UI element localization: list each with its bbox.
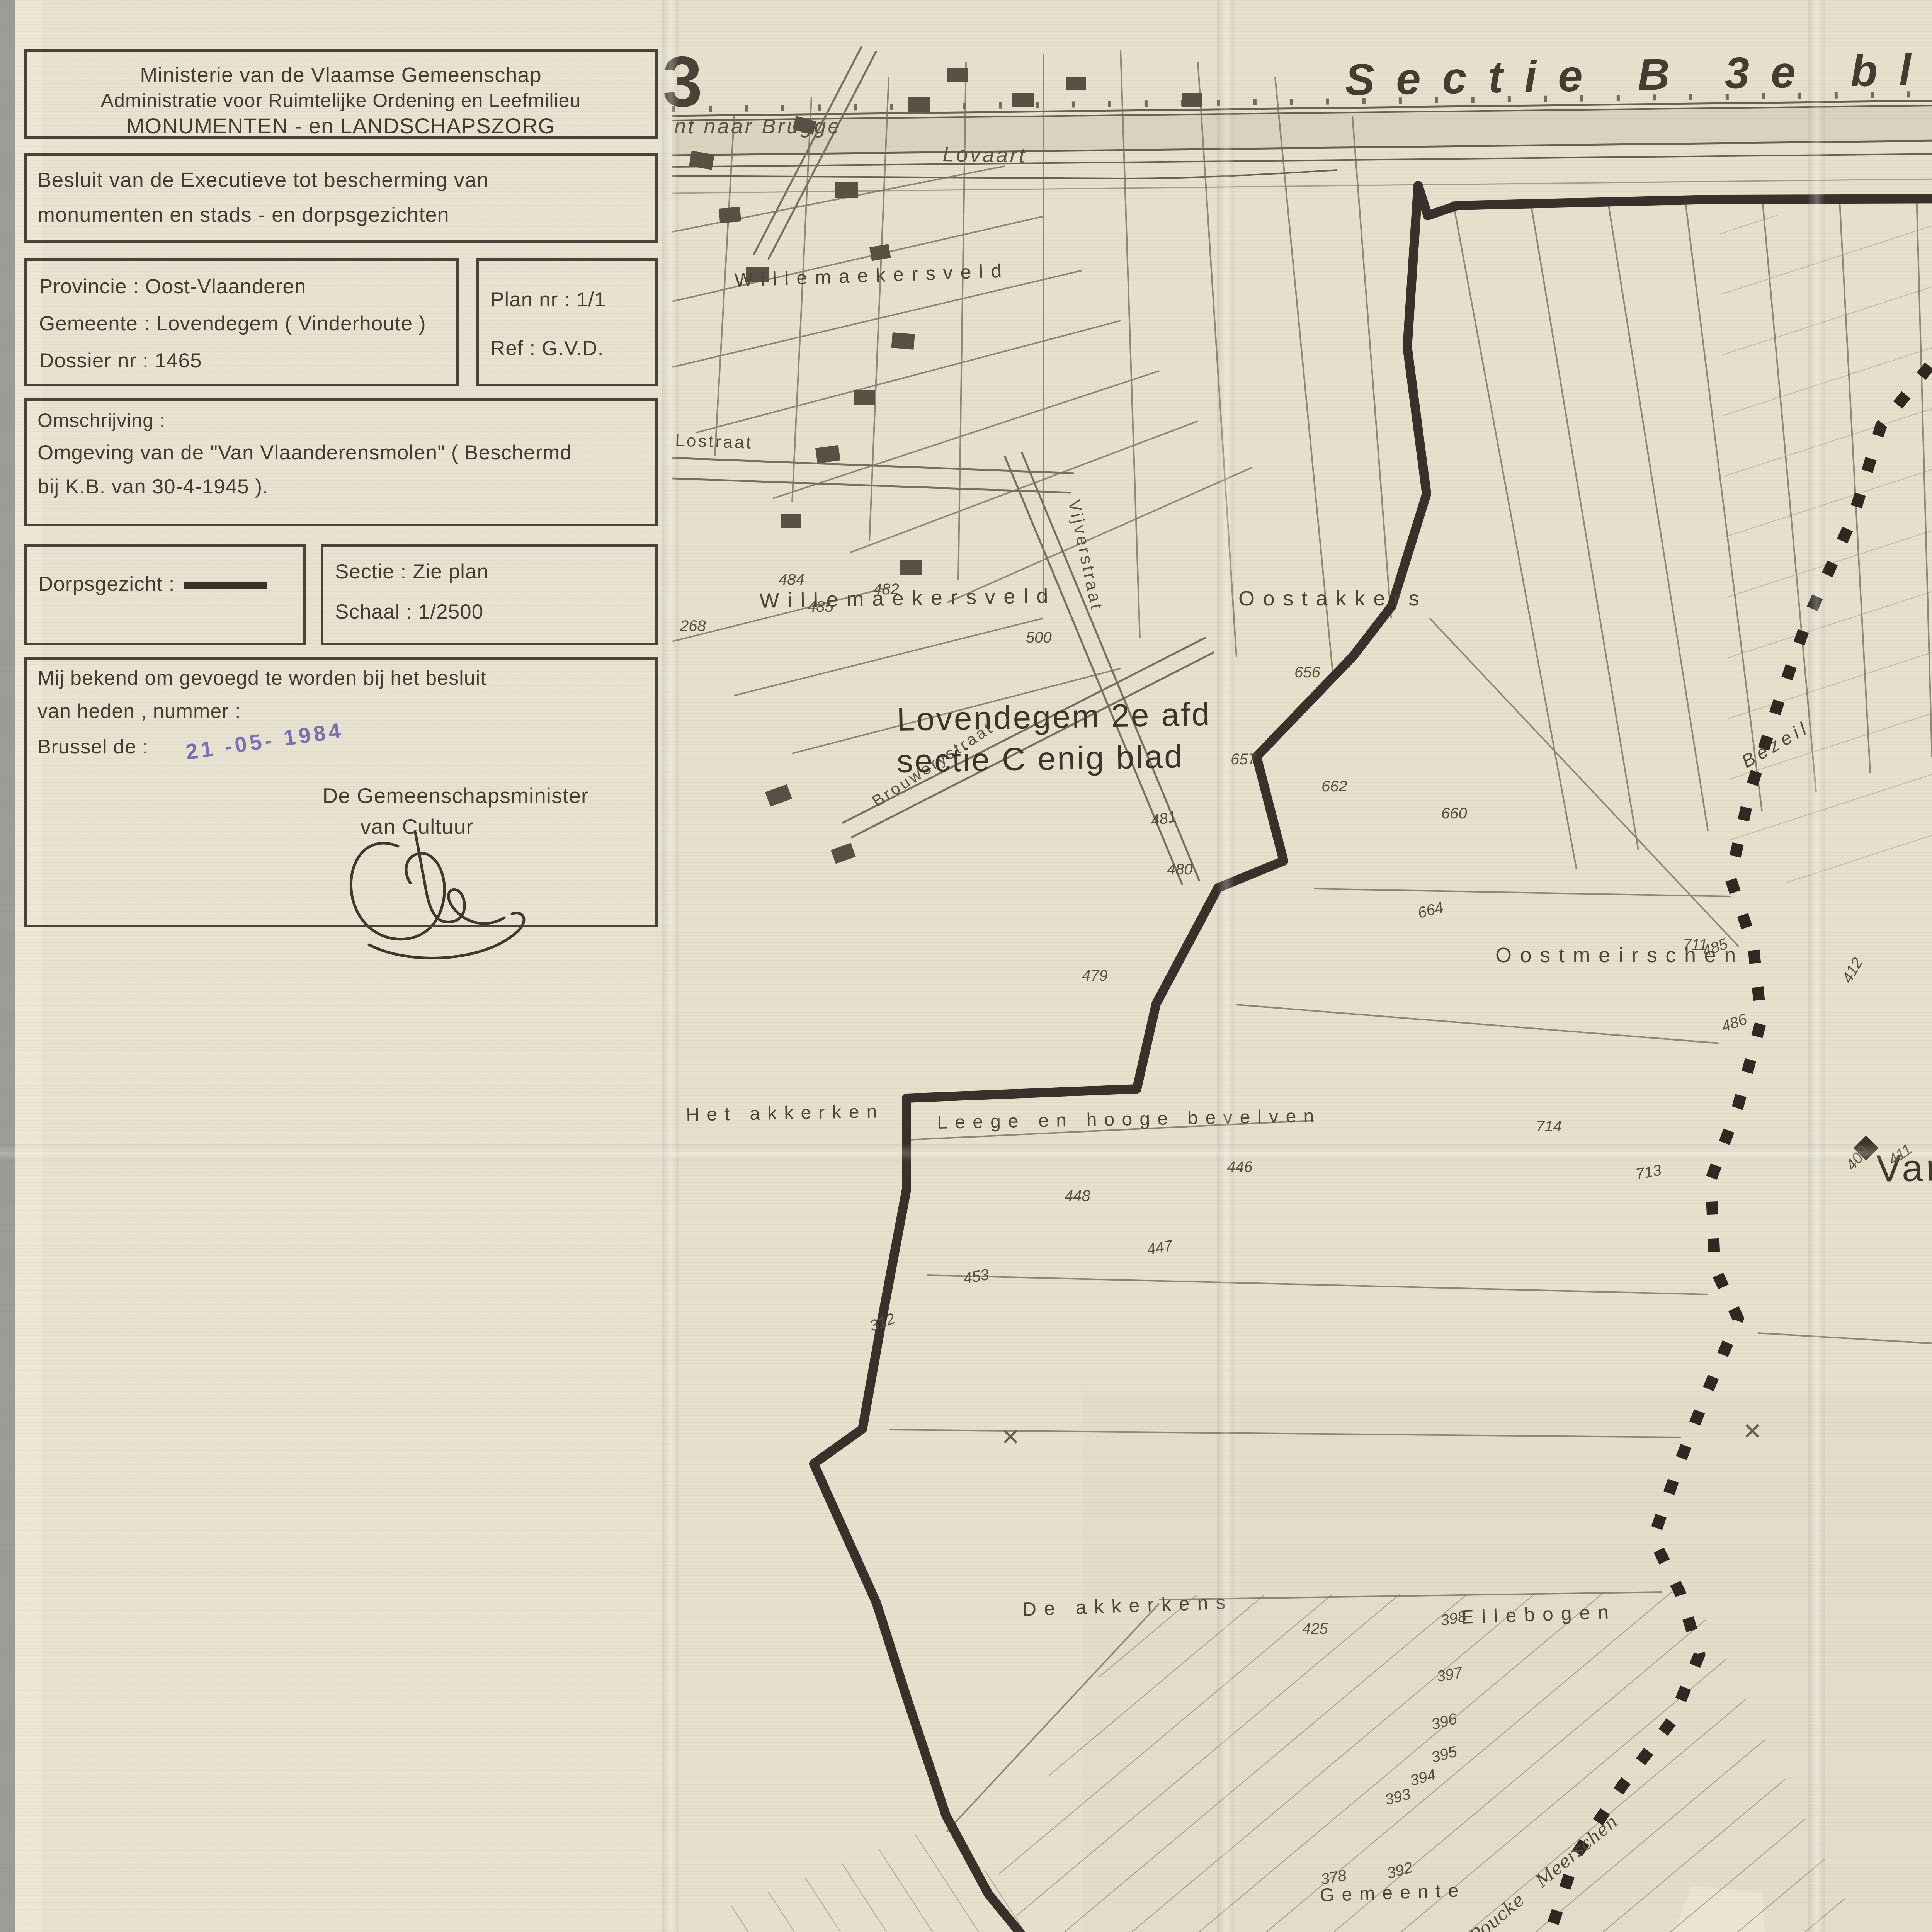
minister-line: De Gemeenschapsminister (282, 783, 629, 808)
dossier-label: Dossier nr : 1465 (39, 349, 202, 372)
sectie-label: Sectie : Zie plan (335, 560, 489, 583)
ref-label: Ref : G.V.D. (490, 337, 604, 360)
scanned-map-document: 3Sectie B 3e bladnt naar BruggeLovaart· … (0, 0, 1932, 1932)
description-box: Omschrijving : Omgeving van de "Van Vlaa… (24, 398, 658, 526)
note-line: Brussel de : (37, 735, 148, 759)
plan-number-label: Plan nr : 1/1 (490, 288, 606, 311)
note-line: Mij bekend om gevoegd te worden bij het … (37, 667, 486, 690)
approval-box: Mij bekend om gevoegd te worden bij het … (24, 657, 658, 927)
plan-ref-box: Plan nr : 1/1 Ref : G.V.D. (476, 258, 658, 386)
description-line: bij K.B. van 30-4-1945 ). (37, 475, 269, 498)
decree-line: Besluit van de Executieve tot beschermin… (37, 168, 489, 192)
dorpsgezicht-text: Dorpsgezicht : (38, 573, 175, 595)
province-label: Provincie : Oost-Vlaanderen (39, 275, 306, 298)
decree-box: Besluit van de Executieve tot beschermin… (24, 153, 658, 243)
ministry-line: MONUMENTEN - en LANDSCHAPSZORG (27, 113, 655, 138)
ministry-line: Administratie voor Ruimtelijke Ordening … (27, 89, 655, 112)
date-stamp: 21 -05- 1984 (184, 718, 345, 765)
note-line: van heden , nummer : (37, 700, 241, 723)
municipality-label: Gemeente : Lovendegem ( Vinderhoute ) (39, 312, 426, 335)
description-title: Omschrijving : (37, 409, 165, 432)
dorpsgezicht-line-swatch (184, 582, 267, 589)
dorpsgezicht-legend-box: Dorpsgezicht : (24, 544, 306, 645)
ministry-box: Ministerie van de Vlaamse Gemeenschap Ad… (24, 49, 658, 139)
info-panel: Ministerie van de Vlaamse Gemeenschap Ad… (0, 0, 1932, 1932)
dorpsgezicht-label: Dorpsgezicht : (38, 572, 267, 596)
location-box: Provincie : Oost-Vlaanderen Gemeente : L… (24, 258, 459, 386)
minister-line: van Cultuur (243, 814, 591, 839)
schaal-label: Schaal : 1/2500 (335, 600, 483, 624)
sectie-schaal-box: Sectie : Zie plan Schaal : 1/2500 (321, 544, 658, 645)
description-line: Omgeving van de "Van Vlaanderensmolen" (… (37, 441, 572, 464)
decree-line: monumenten en stads - en dorpsgezichten (37, 203, 449, 227)
ministry-line: Ministerie van de Vlaamse Gemeenschap (27, 63, 655, 87)
